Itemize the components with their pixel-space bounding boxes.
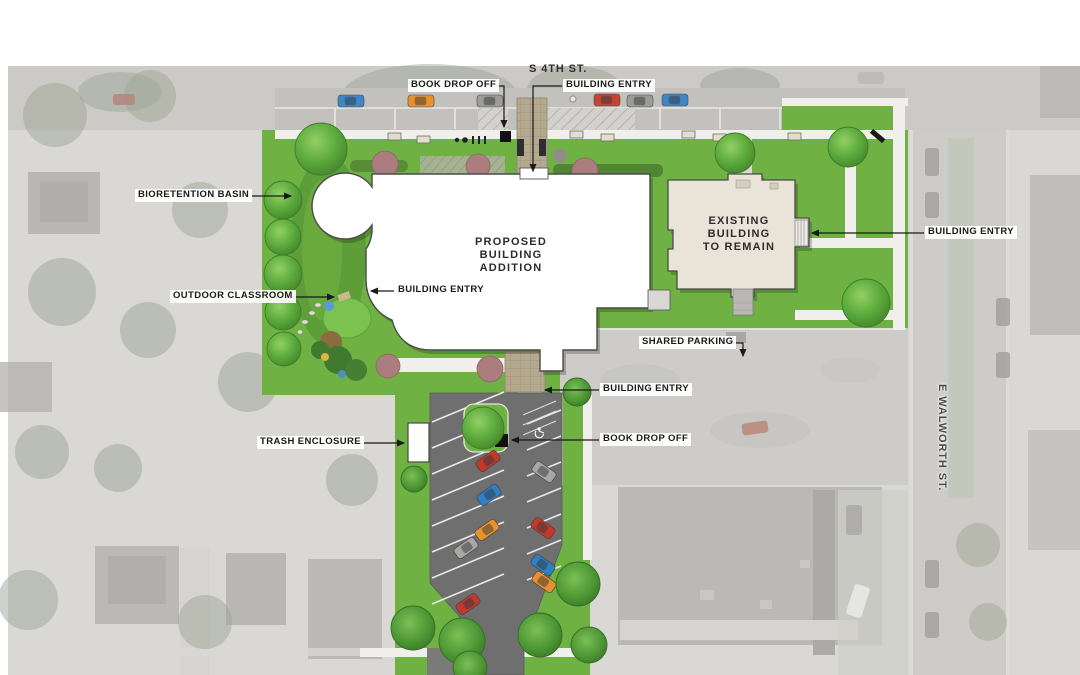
callout-bioretention-basin: BIORETENTION BASIN <box>135 189 252 202</box>
callout-building-entry-west: BUILDING ENTRY <box>395 284 487 297</box>
callout-shared-parking: SHARED PARKING <box>639 336 736 349</box>
entry-door-mark <box>517 139 524 156</box>
callout-building-entry-east: BUILDING ENTRY <box>925 226 1017 239</box>
trash-enclosure-structure <box>408 423 429 462</box>
callout-book-drop-off-south: BOOK DROP OFF <box>600 433 691 446</box>
street-label-walworth: E WALWORTH ST. <box>936 384 948 491</box>
no-parking-hatch-east <box>547 108 635 130</box>
light-pole <box>570 96 576 102</box>
callout-building-entry-top: BUILDING ENTRY <box>563 79 655 92</box>
callout-building-entry-south: BUILDING ENTRY <box>600 383 692 396</box>
entry-door-mark <box>539 139 546 156</box>
building-connector <box>648 290 670 310</box>
shared-parking-area <box>560 328 908 485</box>
book-drop-marker-north <box>500 131 511 142</box>
existing-building-label: EXISTING BUILDING TO REMAIN <box>674 215 804 255</box>
north-vestibule <box>520 168 548 179</box>
south-stair <box>733 289 753 315</box>
street-label-s4th: S 4TH ST. <box>529 63 587 75</box>
proposed-building-label: PROPOSED BUILDING ADDITION <box>450 236 572 276</box>
site-plan-page: S 4TH ST. E WALWORTH ST. PROPOSED BUILDI… <box>0 0 1080 675</box>
callout-book-drop-off-top: BOOK DROP OFF <box>408 79 499 92</box>
site-plan-drawing <box>0 0 1080 675</box>
callout-outdoor-classroom: OUTDOOR CLASSROOM <box>170 290 296 303</box>
callout-trash-enclosure: TRASH ENCLOSURE <box>257 436 364 449</box>
